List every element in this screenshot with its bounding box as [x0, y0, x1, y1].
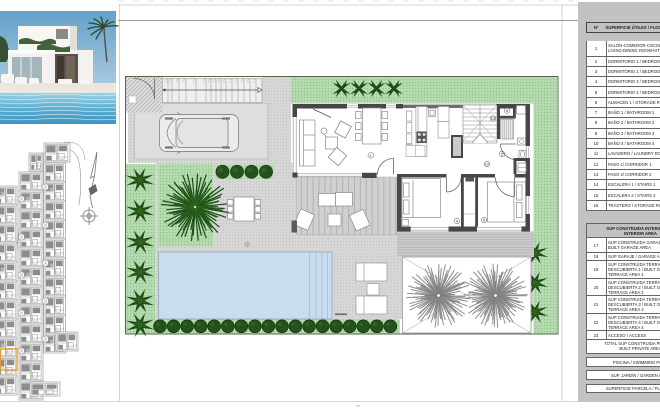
svg-text:14: 14	[491, 116, 496, 121]
svg-text:**: **	[356, 405, 360, 410]
svg-text:12: 12	[485, 161, 490, 166]
